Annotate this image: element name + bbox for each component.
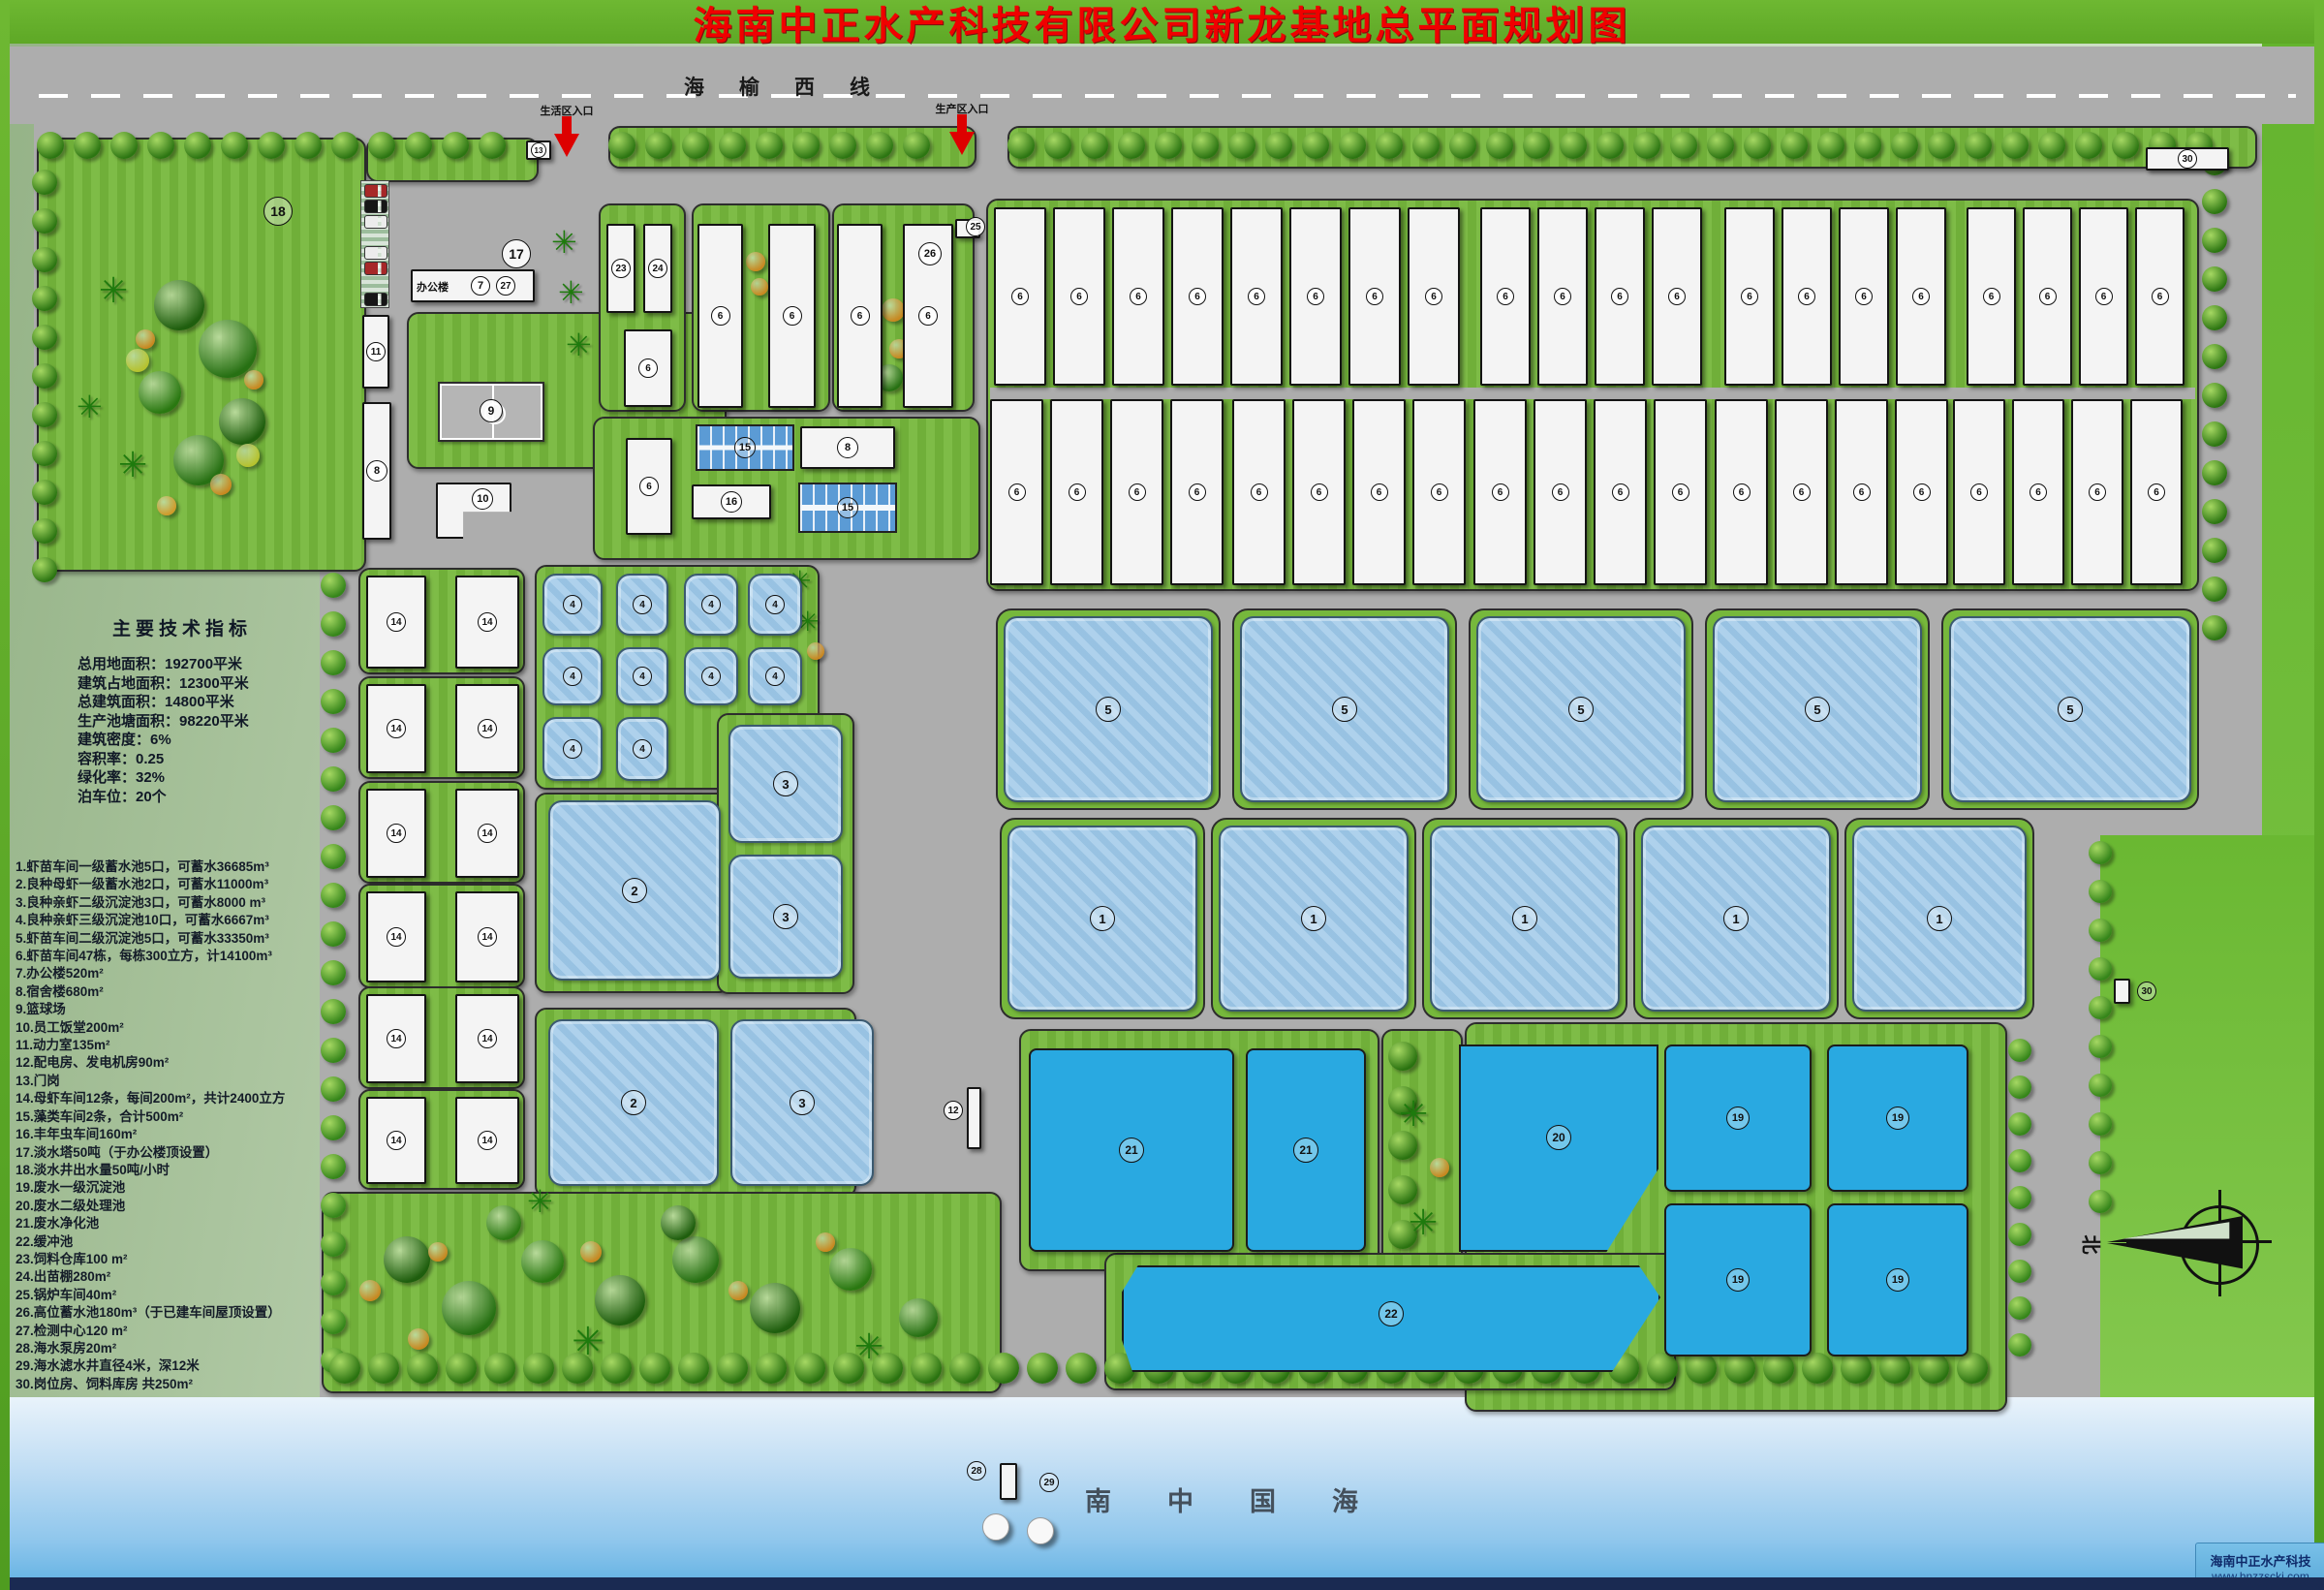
tree-row-top-1	[368, 132, 395, 159]
pond-4-label: 4	[563, 595, 582, 614]
tree-row-top-1	[479, 132, 506, 159]
bush-col-left	[321, 689, 346, 714]
tree-row-top-3	[1817, 132, 1844, 159]
marker-27-testing-center: 27	[496, 276, 515, 296]
tree-row-top-3	[1854, 132, 1881, 159]
pond-15-algae-label: 15	[837, 497, 858, 518]
bush-col-left	[321, 611, 346, 637]
tree-col-right-1	[2202, 421, 2227, 447]
text-line: 14.母虾车间12条，每间200m²，共计2400立方	[15, 1090, 325, 1107]
text-line: 13.门岗	[15, 1073, 325, 1090]
text-line: 21.废水净化池	[15, 1215, 325, 1232]
tree-col-left	[32, 557, 57, 582]
tree-row-top-3	[1523, 132, 1550, 159]
tree-row-top-3	[1412, 132, 1440, 159]
parked-car	[364, 246, 387, 260]
bush-col-right-2	[2089, 919, 2112, 942]
pond-4-label: 4	[633, 595, 652, 614]
tree-row-bottom	[1686, 1353, 1717, 1384]
workshop-6-label: 6	[918, 306, 938, 326]
workshop-6-label: 6	[1069, 483, 1086, 501]
workshop-6-label: 6	[1311, 483, 1328, 501]
workshops-lane	[990, 388, 2195, 399]
tree-row-top-1	[221, 132, 248, 159]
bush-col-left	[321, 766, 346, 792]
forest-shrub	[126, 349, 149, 372]
tree-row-bottom	[717, 1353, 748, 1384]
tree-col-left	[32, 170, 57, 195]
bush-col-left	[321, 805, 346, 830]
workshop-6-label: 6	[2089, 483, 2106, 501]
text-line: 20.废水二级处理池	[15, 1198, 325, 1215]
pond-1-label: 1	[1723, 906, 1749, 931]
forest-tree	[139, 371, 181, 414]
tree-row-top-1	[405, 132, 432, 159]
tree-row-bottom	[1918, 1353, 1949, 1384]
bush-col-right-3	[2008, 1149, 2031, 1172]
marker-25-boiler: 25	[966, 217, 985, 236]
garden-tree	[750, 1283, 800, 1333]
tree-col-right-1	[2202, 383, 2227, 408]
tree-row-bottom	[949, 1353, 980, 1384]
workshop-6-label: 6	[1189, 483, 1206, 501]
forest-tree	[199, 320, 257, 378]
marker-26-rooftop-tank: 26	[918, 242, 942, 265]
workshop-6-label: 6	[851, 306, 870, 326]
text-line: 1.虾苗车间一级蓄水池5口，可蓄水36685m³	[15, 858, 325, 876]
workshop-6-label: 6	[1912, 288, 1930, 305]
garden-shrub	[580, 1241, 602, 1263]
bush-col-right-2	[2089, 1112, 2112, 1136]
text-line: 25.锅炉车间40m²	[15, 1287, 325, 1304]
parked-car	[364, 184, 387, 198]
building-13-gate-label: 13	[531, 142, 546, 158]
building-11-power-room-label: 11	[366, 342, 386, 361]
tree-row-top-3	[1707, 132, 1734, 159]
pond-4-label: 4	[765, 595, 785, 614]
pond-1-label: 1	[1301, 906, 1326, 931]
tree-row-top-1	[110, 132, 138, 159]
workshop-6-label: 6	[1612, 483, 1629, 501]
tree-col-left	[32, 286, 57, 311]
tree-row-top-3	[1965, 132, 1992, 159]
garden-tree	[595, 1275, 645, 1325]
tree-row-top-2	[866, 132, 893, 159]
palm-tree: ✳	[527, 1186, 553, 1217]
text-line: 4.良种亲虾三级沉淀池10口，可蓄水6667m³	[15, 912, 325, 929]
tree-row-bottom	[756, 1353, 787, 1384]
palm-tree: ✳	[854, 1329, 883, 1364]
tree-col-right-1	[2202, 266, 2227, 292]
tree-col-left	[32, 402, 57, 427]
marker-7-office: 7	[471, 276, 490, 296]
garden-tree	[829, 1248, 872, 1291]
tree-row-top-3	[1118, 132, 1145, 159]
pond-5-label: 5	[2058, 697, 2083, 722]
tree-col-left	[32, 441, 57, 466]
pond-2-label: 2	[622, 878, 647, 903]
tree-row-top-2	[903, 132, 930, 159]
pond-3-label: 3	[790, 1090, 815, 1115]
text-line: 建筑占地面积：12300平米	[77, 674, 320, 694]
bush-col-right-3	[2008, 1333, 2031, 1356]
garden-shrub	[408, 1328, 429, 1350]
seawater-filter-well	[982, 1513, 1009, 1541]
workshop-6-label: 6	[639, 477, 659, 496]
pond-4-label: 4	[633, 739, 652, 759]
workshop-6-label: 6	[1011, 288, 1029, 305]
tree-row-top-2	[792, 132, 820, 159]
workshop-6-label: 6	[1793, 483, 1811, 501]
tree-col-right-1	[2202, 538, 2227, 563]
bush-col-right-2	[2089, 880, 2112, 903]
garden-tree	[661, 1205, 696, 1240]
palm-tree: ✳	[1399, 1097, 1428, 1132]
tree-row-top-1	[184, 132, 211, 159]
garden-shrub	[816, 1232, 835, 1252]
text-line: 泊车位：20个	[77, 788, 320, 807]
text-line: 28.海水泵房20m²	[15, 1340, 325, 1357]
tree-row-top-1	[331, 132, 358, 159]
parking-lot	[360, 180, 389, 308]
tree-col-right-1	[2202, 460, 2227, 485]
bush-col-right-2	[2089, 1035, 2112, 1058]
bush-col-right-3	[2008, 1223, 2031, 1246]
text-line: 8.宿舍楼680m²	[15, 983, 325, 1001]
tree-col-left	[32, 480, 57, 505]
text-line: 16.丰年虫车间160m²	[15, 1126, 325, 1143]
tree-row-top-3	[2001, 132, 2029, 159]
bush-col-right-3	[2008, 1112, 2031, 1136]
tree-col-left	[32, 208, 57, 234]
pond-4-label: 4	[701, 595, 721, 614]
tree-row-bottom	[1763, 1353, 1794, 1384]
building-14-broodstock-label: 14	[387, 927, 406, 947]
workshop-6-label: 6	[1492, 483, 1509, 501]
tree-row-top-3	[1449, 132, 1476, 159]
tree-row-top-3	[1486, 132, 1513, 159]
building-14-broodstock-label: 14	[387, 824, 406, 843]
shrub	[1430, 1158, 1449, 1177]
workshop-6-label: 6	[1307, 288, 1324, 305]
garden-tree	[384, 1236, 430, 1283]
parked-car	[364, 215, 387, 229]
workshop-6-label: 6	[2152, 288, 2169, 305]
text-line: 生产池塘面积：98220平米	[77, 712, 320, 732]
workshop-6-label: 6	[2030, 483, 2047, 501]
text-line: 5.虾苗车间二级沉淀池5口，可蓄水33350m³	[15, 930, 325, 948]
tree-row-top-3	[1560, 132, 1587, 159]
building-14-broodstock-label: 14	[478, 1131, 497, 1150]
text-line: 29.海水滤水井直径4米，深12米	[15, 1357, 325, 1375]
pond-2-label: 2	[621, 1090, 646, 1115]
parked-car	[364, 200, 387, 213]
tree-strip-trees	[1388, 1042, 1417, 1071]
tree-col-right-1	[2202, 499, 2227, 524]
compass-north-label: 北	[2079, 1235, 2107, 1255]
marker-17-water-tower: 17	[502, 239, 531, 268]
building-28-pump-house	[1000, 1463, 1017, 1500]
building-16-brine-shrimp-label: 16	[721, 491, 742, 513]
building-14-broodstock-label: 14	[478, 824, 497, 843]
bush-col-right-2	[2089, 996, 2112, 1019]
forest-shrub	[210, 474, 232, 495]
pond-4-label: 4	[633, 667, 652, 686]
text-line: 绿化率：32%	[77, 768, 320, 788]
text-line: 23.饲料仓库100 m²	[15, 1251, 325, 1268]
text-line: 10.员工饭堂200m²	[15, 1019, 325, 1037]
building-14-broodstock-label: 14	[478, 927, 497, 947]
workshop-6-label: 6	[1668, 288, 1686, 305]
tree-row-top-3	[1596, 132, 1624, 159]
building-12-generator	[967, 1087, 981, 1149]
tree-col-left	[32, 363, 57, 389]
text-line: 15.藻类车间2条，合计500m²	[15, 1108, 325, 1126]
forest-tree	[154, 280, 204, 330]
workshop-6-label: 6	[2039, 288, 2057, 305]
tree-row-top-3	[1633, 132, 1660, 159]
highway	[10, 47, 2314, 124]
tree-col-right-1	[2202, 344, 2227, 369]
text-line: 11.动力室135m²	[15, 1037, 325, 1054]
forest-shrub	[157, 496, 176, 515]
bg-right-vivid-2	[2100, 835, 2314, 1397]
pond-1-label: 1	[1927, 906, 1952, 931]
pond-19-label: 19	[1886, 1107, 1909, 1130]
seawater-filter-well	[1027, 1517, 1054, 1544]
pond-4-label: 4	[563, 739, 582, 759]
workshop-6-label: 6	[1798, 288, 1815, 305]
tree-row-bottom	[601, 1353, 632, 1384]
workshop-6-label: 6	[1431, 483, 1448, 501]
tree-row-bottom	[523, 1353, 554, 1384]
indicators-heading: 主要技术指标	[112, 614, 252, 640]
building-14-broodstock-label: 14	[387, 719, 406, 738]
text-line: 12.配电房、发电机房90m²	[15, 1054, 325, 1072]
garden-shrub	[428, 1242, 448, 1262]
bush-col-left	[321, 650, 346, 675]
tree-row-bottom	[1802, 1353, 1833, 1384]
garden-tree	[899, 1298, 938, 1337]
workshop-6-label: 6	[1970, 483, 1988, 501]
tree-row-top-2	[645, 132, 672, 159]
tree-row-top-3	[2075, 132, 2102, 159]
bush-col-left	[321, 728, 346, 753]
text-line: 22.缓冲池	[15, 1233, 325, 1251]
workshop-6-label: 6	[2095, 288, 2113, 305]
bush-col-left	[321, 573, 346, 598]
tree-row-bottom	[1841, 1353, 1872, 1384]
tree-row-bottom	[1647, 1353, 1678, 1384]
workshop-6-label: 6	[1552, 483, 1569, 501]
pond-19-label: 19	[1886, 1268, 1909, 1292]
tree-col-left	[32, 518, 57, 544]
entrance-right-arrow-icon	[949, 132, 975, 155]
workshop-6-label: 6	[638, 359, 658, 378]
entrance-left-arrow-icon	[554, 134, 579, 157]
text-line: 建筑密度：6%	[77, 731, 320, 750]
marker-29-filter-well: 29	[1039, 1473, 1059, 1492]
tree-row-top-3	[1891, 132, 1918, 159]
tree-col-right-1	[2202, 615, 2227, 640]
tree-row-top-3	[1302, 132, 1329, 159]
highway-name: 海榆西线	[620, 72, 969, 101]
text-line: 3.良种亲虾二级沉淀池3口，可蓄水8000 m³	[15, 894, 325, 912]
tree-col-right-1	[2202, 305, 2227, 330]
tree-col-right-1	[2202, 577, 2227, 602]
tree-row-top-3	[2112, 132, 2139, 159]
workshop-6-label: 6	[1741, 288, 1758, 305]
workshop-6-label: 6	[1129, 483, 1146, 501]
garden-shrub	[728, 1281, 748, 1300]
text-line: 6.虾苗车间47栋，每栋300立方，计14100m³	[15, 948, 325, 965]
marker-18-freshwater-well: 18	[263, 197, 293, 226]
tree-strip-trees	[1388, 1131, 1417, 1160]
logo-company-name: 海南中正水产科技	[2210, 1551, 2310, 1570]
pond-19-label: 19	[1726, 1268, 1750, 1292]
building-14-broodstock-label: 14	[478, 719, 497, 738]
shrub	[807, 642, 824, 660]
text-line: 18.淡水井出水量50吨/小时	[15, 1162, 325, 1179]
bush-col-right-3	[2008, 1039, 2031, 1062]
workshop-6-label: 6	[1425, 288, 1442, 305]
building-14-broodstock-label: 14	[478, 612, 497, 632]
forest-shrub	[236, 444, 260, 467]
pond-5-label: 5	[1805, 697, 1830, 722]
text-line: 24.出苗棚280m²	[15, 1268, 325, 1286]
marker-30-small: 30	[2137, 982, 2156, 1001]
tree-row-top-2	[682, 132, 709, 159]
pond-3-label: 3	[773, 771, 798, 796]
tree-row-top-2	[756, 132, 783, 159]
palm-tree: ✳	[551, 227, 577, 258]
tree-row-top-3	[1044, 132, 1071, 159]
marker-9-basketball: 9	[480, 399, 503, 422]
workshop-6-label: 6	[1008, 483, 1026, 501]
forest-shrub	[244, 370, 263, 390]
workshop-6-label: 6	[1371, 483, 1388, 501]
bottom-bar	[10, 1577, 2324, 1590]
palm-tree: ✳	[566, 329, 592, 360]
tree-row-bottom	[911, 1353, 942, 1384]
tree-row-bottom	[484, 1353, 515, 1384]
pond-19-label: 19	[1726, 1107, 1750, 1130]
shrub	[882, 298, 905, 322]
tree-row-top-3	[1376, 132, 1403, 159]
tree-row-bottom	[1027, 1353, 1058, 1384]
entrance-left-arrow-shaft	[562, 116, 572, 134]
tree-row-bottom	[678, 1353, 709, 1384]
marker-12-generator: 12	[944, 1101, 963, 1120]
bush-col-right-3	[2008, 1296, 2031, 1320]
garden-tree	[672, 1236, 719, 1283]
tree-row-top-3	[1081, 132, 1108, 159]
shrub	[746, 252, 765, 271]
building-8-annex-label: 8	[837, 437, 858, 458]
tree-row-bottom	[1957, 1353, 1988, 1384]
text-line: 27.检测中心120 m²	[15, 1323, 325, 1340]
workshop-6-label: 6	[1189, 288, 1206, 305]
workshop-6-label: 6	[711, 306, 730, 326]
tree-row-top-3	[1228, 132, 1255, 159]
text-line: 19.废水一级沉淀池	[15, 1179, 325, 1197]
tree-row-bottom	[446, 1353, 477, 1384]
bush-col-right-3	[2008, 1260, 2031, 1283]
building-14-broodstock-label: 14	[387, 1029, 406, 1048]
text-line: 容积率：0.25	[77, 750, 320, 769]
text-line: 26.高位蓄水池180m³（于已建车间屋顶设置）	[15, 1304, 325, 1322]
tree-row-bottom	[639, 1353, 670, 1384]
tree-col-right-1	[2202, 189, 2227, 214]
sea-area: 南中国海	[10, 1397, 2314, 1590]
garden-tree	[521, 1240, 564, 1283]
garden-tree	[442, 1281, 496, 1335]
building-23-feed-warehouse-label: 23	[611, 259, 631, 278]
tree-strip-trees	[1388, 1175, 1417, 1204]
bush-col-right-2	[2089, 957, 2112, 981]
bush-col-right-2	[2089, 1074, 2112, 1097]
building-8-dormitory-label: 8	[366, 460, 387, 482]
building-24-nursery-shed-label: 24	[648, 259, 667, 278]
building-14-broodstock-label: 14	[387, 1131, 406, 1150]
tree-row-top-2	[829, 132, 856, 159]
building-30-small	[2114, 979, 2130, 1004]
workshop-6-label: 6	[1853, 483, 1871, 501]
bush-col-right-3	[2008, 1076, 2031, 1099]
palm-tree: ✳	[572, 1323, 604, 1361]
garden-tree	[486, 1205, 521, 1240]
bush-col-right-2	[2089, 1151, 2112, 1174]
palm-tree: ✳	[99, 273, 128, 308]
text-line: 30.岗位房、饲料库房 共250m²	[15, 1376, 325, 1393]
marker-28-pump: 28	[967, 1461, 986, 1481]
title-bar: 海南中正水产科技有限公司新龙基地总平面规划图	[0, 0, 2324, 44]
tree-row-bottom	[368, 1353, 399, 1384]
tree-row-top-1	[37, 132, 64, 159]
tree-row-top-3	[1339, 132, 1366, 159]
page-title: 海南中正水产科技有限公司新龙基地总平面规划图	[694, 0, 1631, 50]
text-line: 17.淡水塔50吨（于办公楼顶设置）	[15, 1144, 325, 1162]
parked-car	[364, 293, 387, 306]
pond-22-label: 22	[1379, 1301, 1404, 1326]
parked-car	[364, 262, 387, 275]
palm-tree: ✳	[1409, 1205, 1438, 1240]
pond-21-label: 21	[1293, 1138, 1318, 1163]
pond-3-label: 3	[773, 904, 798, 929]
forest-tree	[219, 398, 265, 445]
workshop-6-label: 6	[1733, 483, 1751, 501]
tree-row-bottom	[329, 1353, 360, 1384]
pond-5-label: 5	[1096, 697, 1121, 722]
pond-1-label: 1	[1090, 906, 1115, 931]
tree-row-top-1	[294, 132, 322, 159]
forest-shrub	[136, 329, 155, 349]
workshop-6-label: 6	[1913, 483, 1931, 501]
tree-row-top-2	[608, 132, 635, 159]
tree-col-left	[32, 247, 57, 272]
tree-row-top-3	[1670, 132, 1697, 159]
indicators-panel: 总用地面积：192700平米建筑占地面积：12300平米总建筑面积：14800平…	[77, 655, 320, 806]
workshop-6-label: 6	[1983, 288, 2000, 305]
tree-row-top-3	[1744, 132, 1771, 159]
tree-row-top-2	[719, 132, 746, 159]
highway-dash-line	[39, 94, 2296, 98]
pond-15-algae-label: 15	[734, 437, 756, 458]
workshop-6-label: 6	[1251, 483, 1268, 501]
sea-name: 南中国海	[1085, 1481, 1414, 1518]
bush-col-right-2	[2089, 841, 2112, 864]
tree-row-top-1	[74, 132, 101, 159]
